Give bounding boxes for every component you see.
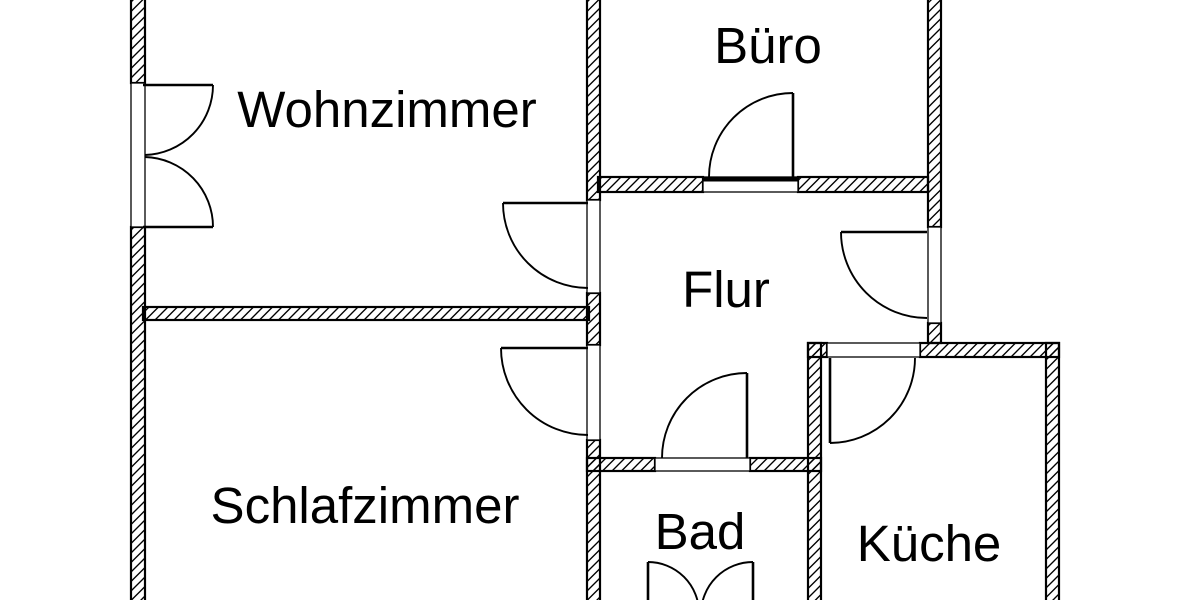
wall-bad-north-west bbox=[587, 458, 655, 471]
room-label-buero: Büro bbox=[714, 17, 822, 74]
wall-flur-east-segment bbox=[928, 323, 941, 343]
wall-bad-north-east bbox=[750, 458, 821, 471]
wall-center-upper bbox=[587, 0, 600, 200]
room-label-schlafzimmer: Schlafzimmer bbox=[211, 477, 520, 534]
wall-center-middle bbox=[587, 293, 600, 345]
floor-plan: Wohnzimmer Büro Flur Schlafzimmer Bad Kü… bbox=[0, 0, 1200, 600]
room-label-bad: Bad bbox=[655, 503, 746, 560]
wall-left-exterior-lower bbox=[131, 227, 145, 600]
opening-bad-flur-door bbox=[655, 458, 750, 471]
opening-kueche-door bbox=[827, 343, 920, 357]
wall-buero-east bbox=[928, 0, 941, 227]
room-label-kueche: Küche bbox=[857, 515, 1002, 572]
opening-wohnzimmer-double-door bbox=[131, 83, 145, 227]
wall-wohnzimmer-schlafzimmer bbox=[143, 307, 589, 320]
wall-buero-south-east bbox=[798, 177, 928, 192]
room-label-wohnzimmer: Wohnzimmer bbox=[237, 81, 536, 138]
floor-plan-canvas: Wohnzimmer Büro Flur Schlafzimmer Bad Kü… bbox=[0, 0, 1200, 600]
wall-left-exterior-upper bbox=[131, 0, 145, 83]
wall-buero-south-west bbox=[598, 177, 703, 192]
wall-kueche-east-exterior bbox=[1046, 343, 1059, 600]
opening-entrance-door bbox=[928, 227, 941, 323]
opening-wohnzimmer-flur-door bbox=[587, 200, 600, 293]
room-label-flur: Flur bbox=[682, 261, 770, 318]
opening-schlafzimmer-flur-door bbox=[587, 345, 600, 440]
wall-kueche-north-east bbox=[920, 343, 1059, 357]
